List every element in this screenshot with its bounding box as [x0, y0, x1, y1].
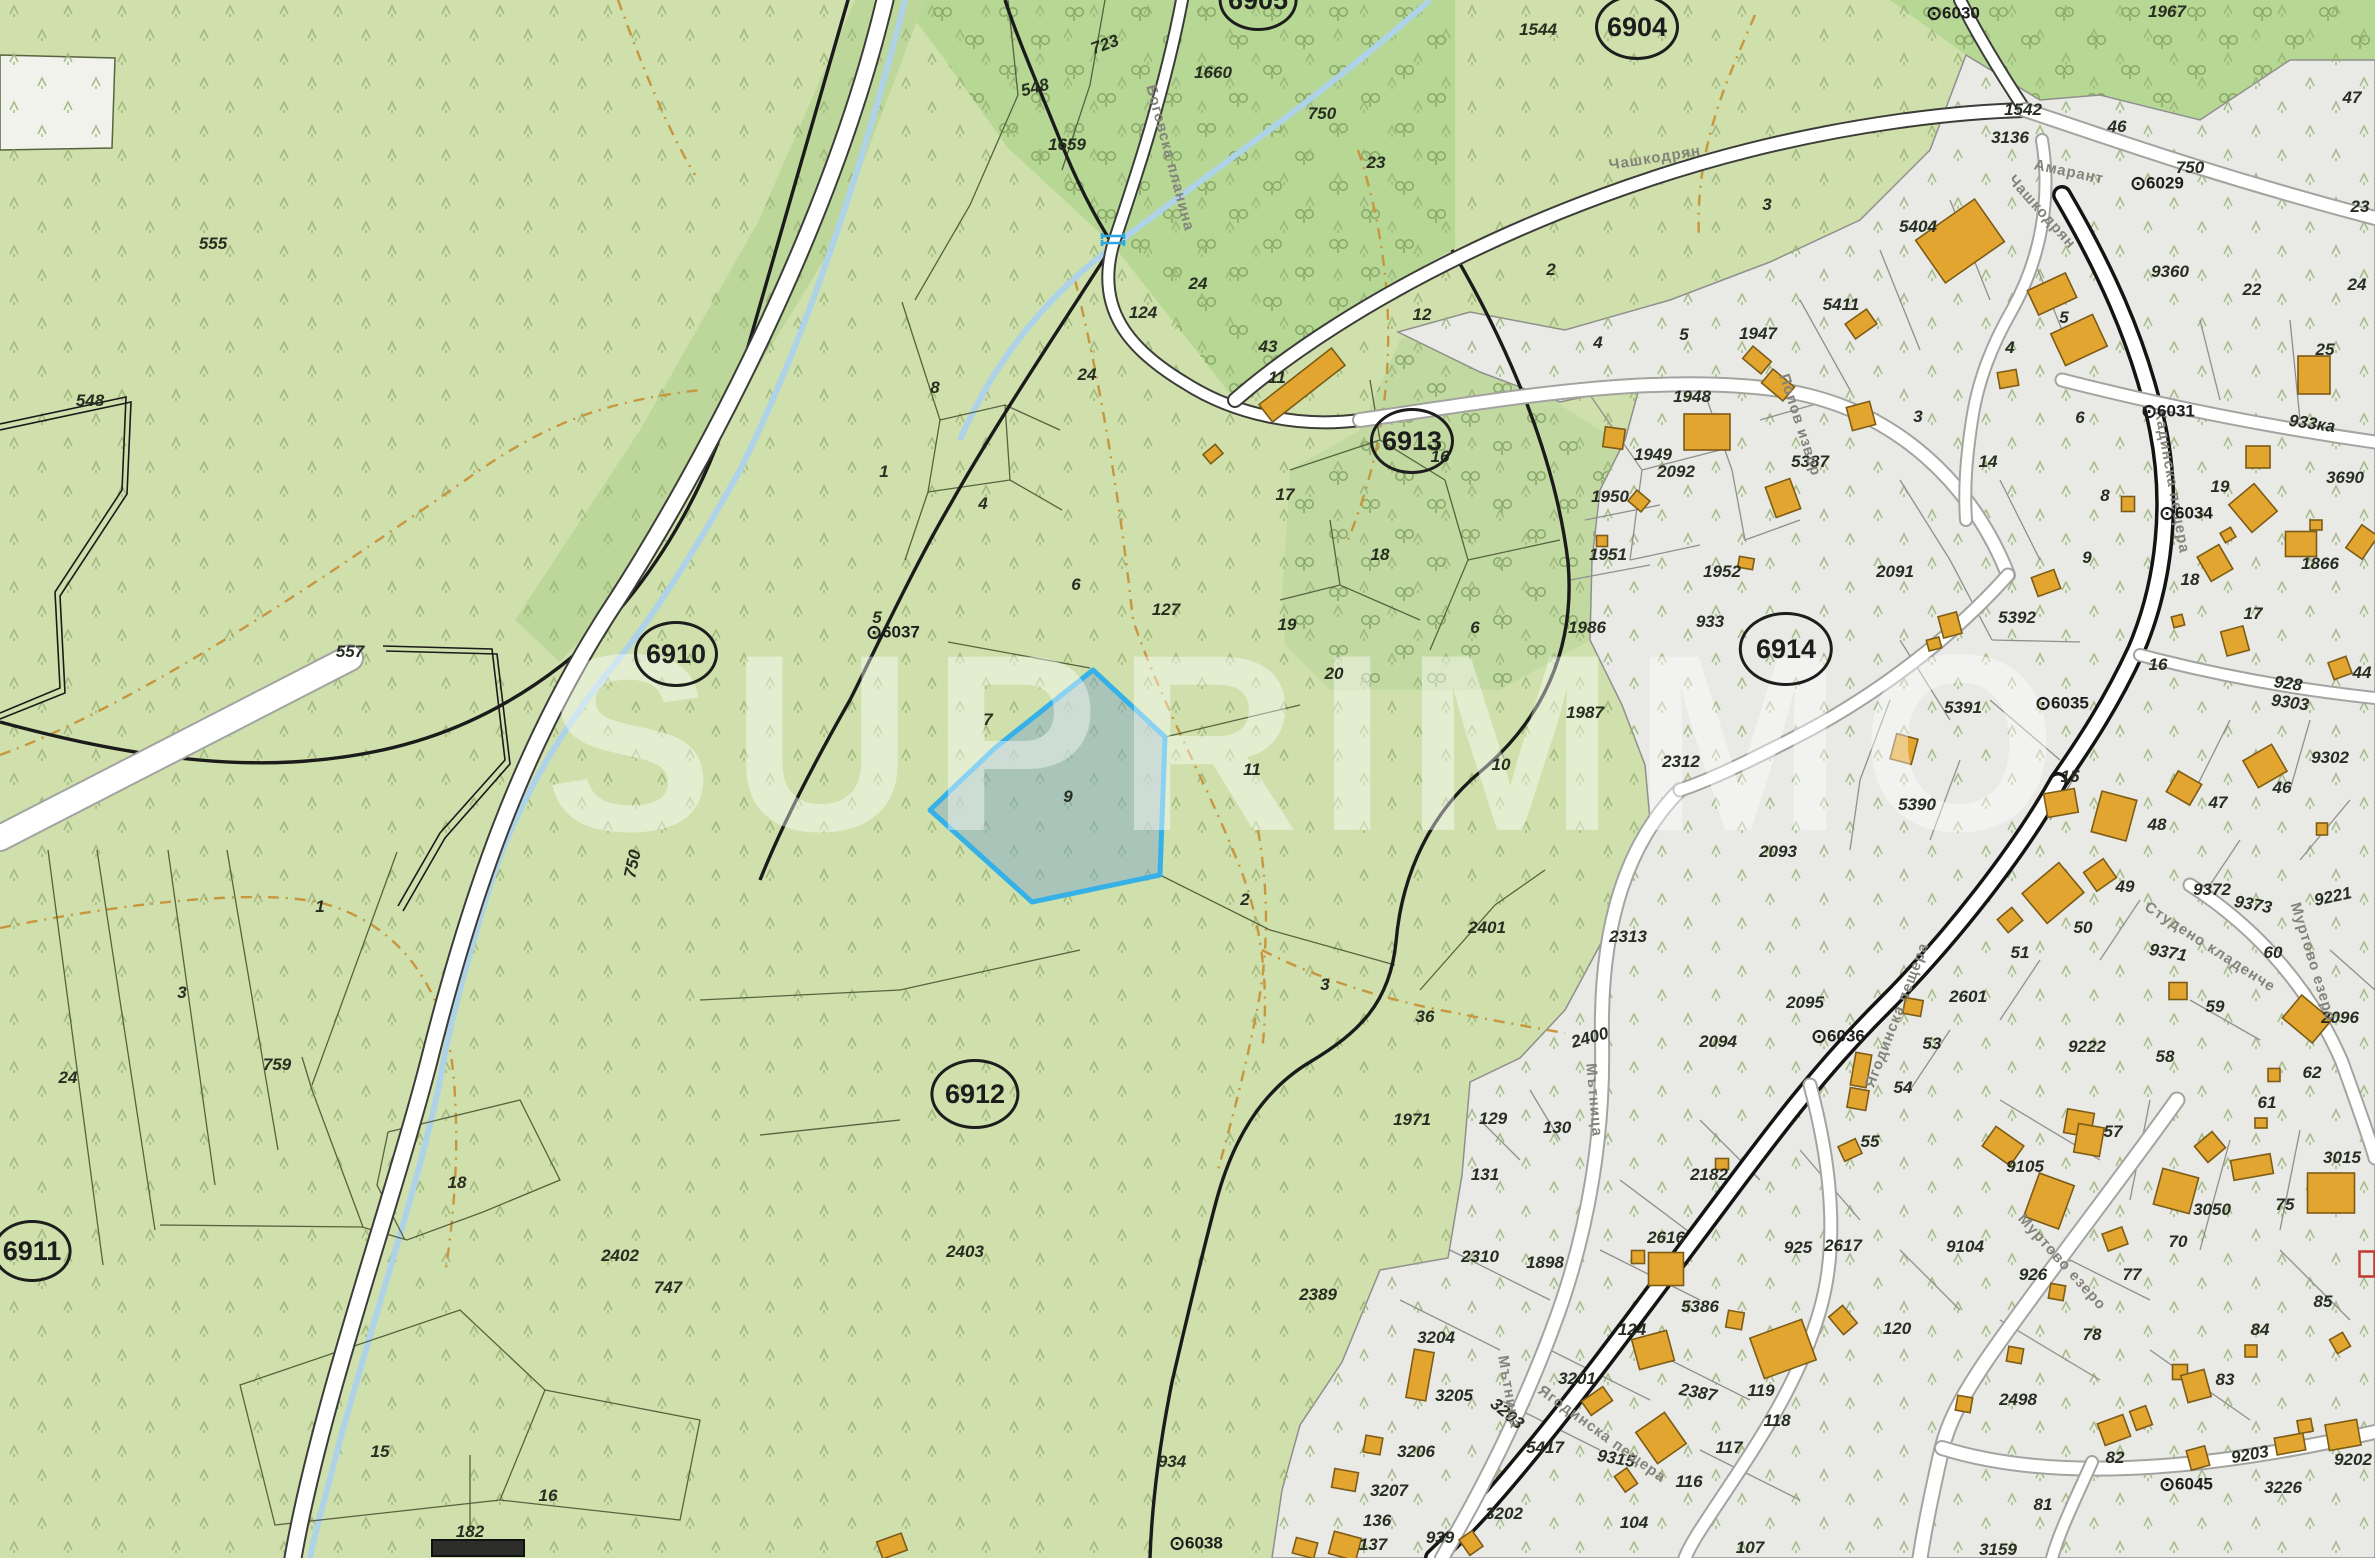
dark-compound: [432, 1540, 524, 1556]
building: [2298, 356, 2330, 394]
building: [1955, 1395, 1972, 1412]
building: [2268, 1069, 2280, 1082]
building: [2310, 520, 2322, 530]
building: [1716, 1159, 1729, 1170]
building: [1726, 1310, 1745, 1330]
building: [2048, 1283, 2065, 1300]
building: [2297, 1418, 2313, 1433]
building: [2246, 446, 2270, 468]
building: [1632, 1251, 1645, 1264]
building: [2186, 1446, 2210, 1470]
building: [2074, 1123, 2105, 1156]
building: [2006, 1346, 2023, 1363]
building: [2255, 1118, 2267, 1128]
building: [1738, 556, 1755, 569]
building: [2317, 823, 2328, 835]
building: [1363, 1435, 1383, 1455]
map-svg: [0, 0, 2375, 1558]
map-canvas[interactable]: SUPRIMMO 5555485571375924181516182240274…: [0, 0, 2375, 1558]
building: [2169, 983, 2187, 1000]
building: [1997, 369, 2018, 388]
building: [2286, 532, 2317, 557]
building: [2325, 1419, 2361, 1450]
building: [1332, 1469, 1359, 1492]
building: [1926, 637, 1941, 651]
building: [2171, 614, 2184, 627]
building: [1903, 998, 1924, 1017]
building: [2044, 788, 2079, 817]
building: [1603, 427, 1626, 450]
building: [2245, 1345, 2257, 1357]
building: [1846, 401, 1875, 430]
building: [1847, 1088, 1869, 1111]
building: [2122, 497, 2135, 512]
building: [1597, 536, 1608, 547]
building: [1649, 1253, 1684, 1286]
building: [2308, 1173, 2355, 1213]
building: [1684, 414, 1730, 450]
